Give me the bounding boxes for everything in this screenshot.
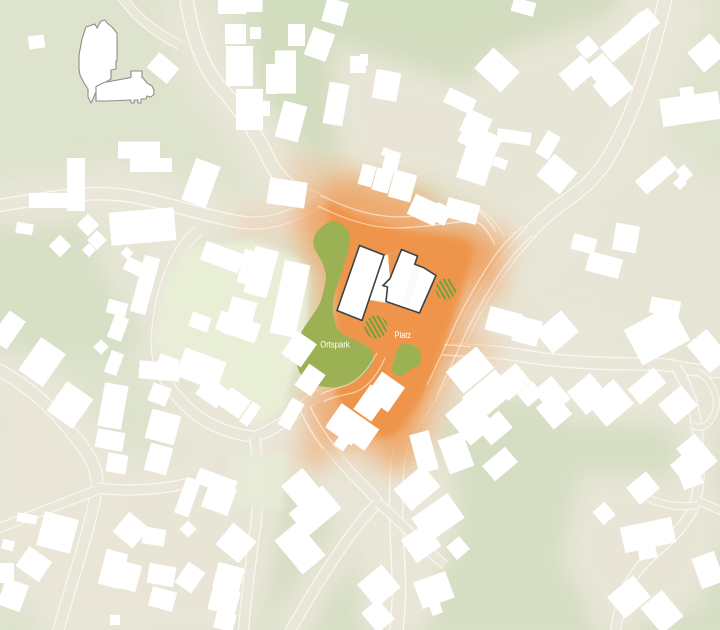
svg-text:Ortspark: Ortspark bbox=[320, 340, 350, 350]
svg-text:Platz: Platz bbox=[395, 330, 412, 340]
